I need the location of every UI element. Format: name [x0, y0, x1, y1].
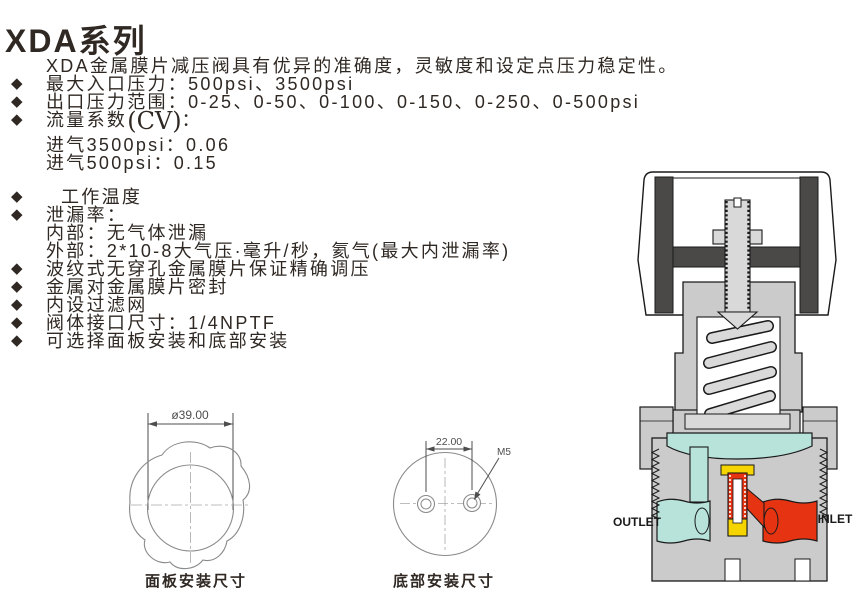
bottom-drawing-caption: 底部安装尺寸: [390, 570, 498, 591]
feature-text: 金属对金属膜片密封: [46, 278, 229, 296]
page-title: XDA系列: [5, 23, 147, 59]
feature-text: 内设过滤网: [46, 296, 148, 314]
diamond-bullet-icon: ◆: [0, 278, 46, 296]
feature-text: 流量系数(CV)：: [46, 111, 202, 130]
inlet-port: [763, 499, 817, 543]
feature-text: 外部：2*10-8大气压·毫升/秒，氦气(最大内泄漏率): [46, 242, 510, 260]
feature-item: ◆ 出口压力范围：0-25、0-50、0-100、0-150、0-250、0-5…: [0, 93, 740, 111]
feature-text: 可选择面板安装和底部安装: [46, 332, 290, 350]
feature-item: ◆ 流量系数(CV)：: [0, 111, 740, 136]
diamond-bullet-icon: ◆: [0, 75, 46, 93]
thread-size-label: M5: [497, 447, 511, 458]
diamond-bullet-icon: ◆: [0, 111, 46, 129]
outlet-passage: [690, 447, 708, 502]
diamond-bullet-icon: ◆: [0, 314, 46, 332]
inlet-label: INLET: [818, 512, 853, 526]
feature-text: 阀体接口尺寸：1/4NPTF: [46, 314, 276, 332]
feature-text: 最大入口压力：500psi、3500psi: [46, 75, 354, 93]
feature-text: 进气500psi：0.15: [46, 154, 218, 172]
feature-text: 进气3500psi：0.06: [46, 136, 230, 154]
intro-line: XDA金属膜片减压阀具有优异的准确度，灵敏度和设定点压力稳定性。: [0, 57, 740, 75]
adjust-stem: [725, 200, 750, 312]
outlet-label: OUTLET: [613, 515, 662, 529]
diamond-bullet-icon: ◆: [0, 93, 46, 111]
feature-text: 波纹式无穿孔金属膜片保证精确调压: [46, 260, 371, 278]
panel-diameter-dimension: ø39.00: [171, 408, 209, 422]
feature-subline: 进气3500psi：0.06: [0, 136, 740, 154]
feature-text: 工作温度: [46, 188, 142, 206]
bottom-mount-drawing: 22.00 M5: [388, 428, 522, 570]
diamond-bullet-icon: ◆: [0, 260, 46, 278]
mount-hole-left: [418, 496, 435, 513]
diamond-bullet-icon: ◆: [0, 332, 46, 350]
feature-item: ◆ 最大入口压力：500psi、3500psi: [0, 75, 740, 93]
panel-mount-drawing: ø39.00: [108, 402, 290, 570]
outlet-port: [657, 499, 710, 543]
feature-text: 内部：无气体泄漏: [46, 224, 208, 242]
feature-text: 泄漏率：: [46, 206, 127, 224]
cv-symbol: (CV): [127, 107, 181, 135]
knob-dark-right-bar: [800, 177, 818, 313]
valve-cross-section-diagram: OUTLET INLET: [585, 163, 859, 598]
panel-drawing-caption: 面板安装尺寸: [136, 570, 256, 591]
hole-spacing-dimension: 22.00: [436, 436, 462, 448]
diamond-bullet-icon: ◆: [0, 296, 46, 314]
intro-text: XDA金属膜片减压阀具有优异的准确度，灵敏度和设定点压力稳定性。: [46, 57, 679, 75]
spring-seat-plate: [685, 414, 790, 429]
datasheet-page: XDA系列 XDA金属膜片减压阀具有优异的准确度，灵敏度和设定点压力稳定性。 ◆…: [0, 0, 859, 598]
diamond-bullet-icon: ◆: [0, 206, 46, 224]
mount-hole-right: [464, 495, 481, 512]
diamond-bullet-icon: ◆: [0, 188, 46, 206]
knob-dark-left-bar: [655, 177, 673, 313]
